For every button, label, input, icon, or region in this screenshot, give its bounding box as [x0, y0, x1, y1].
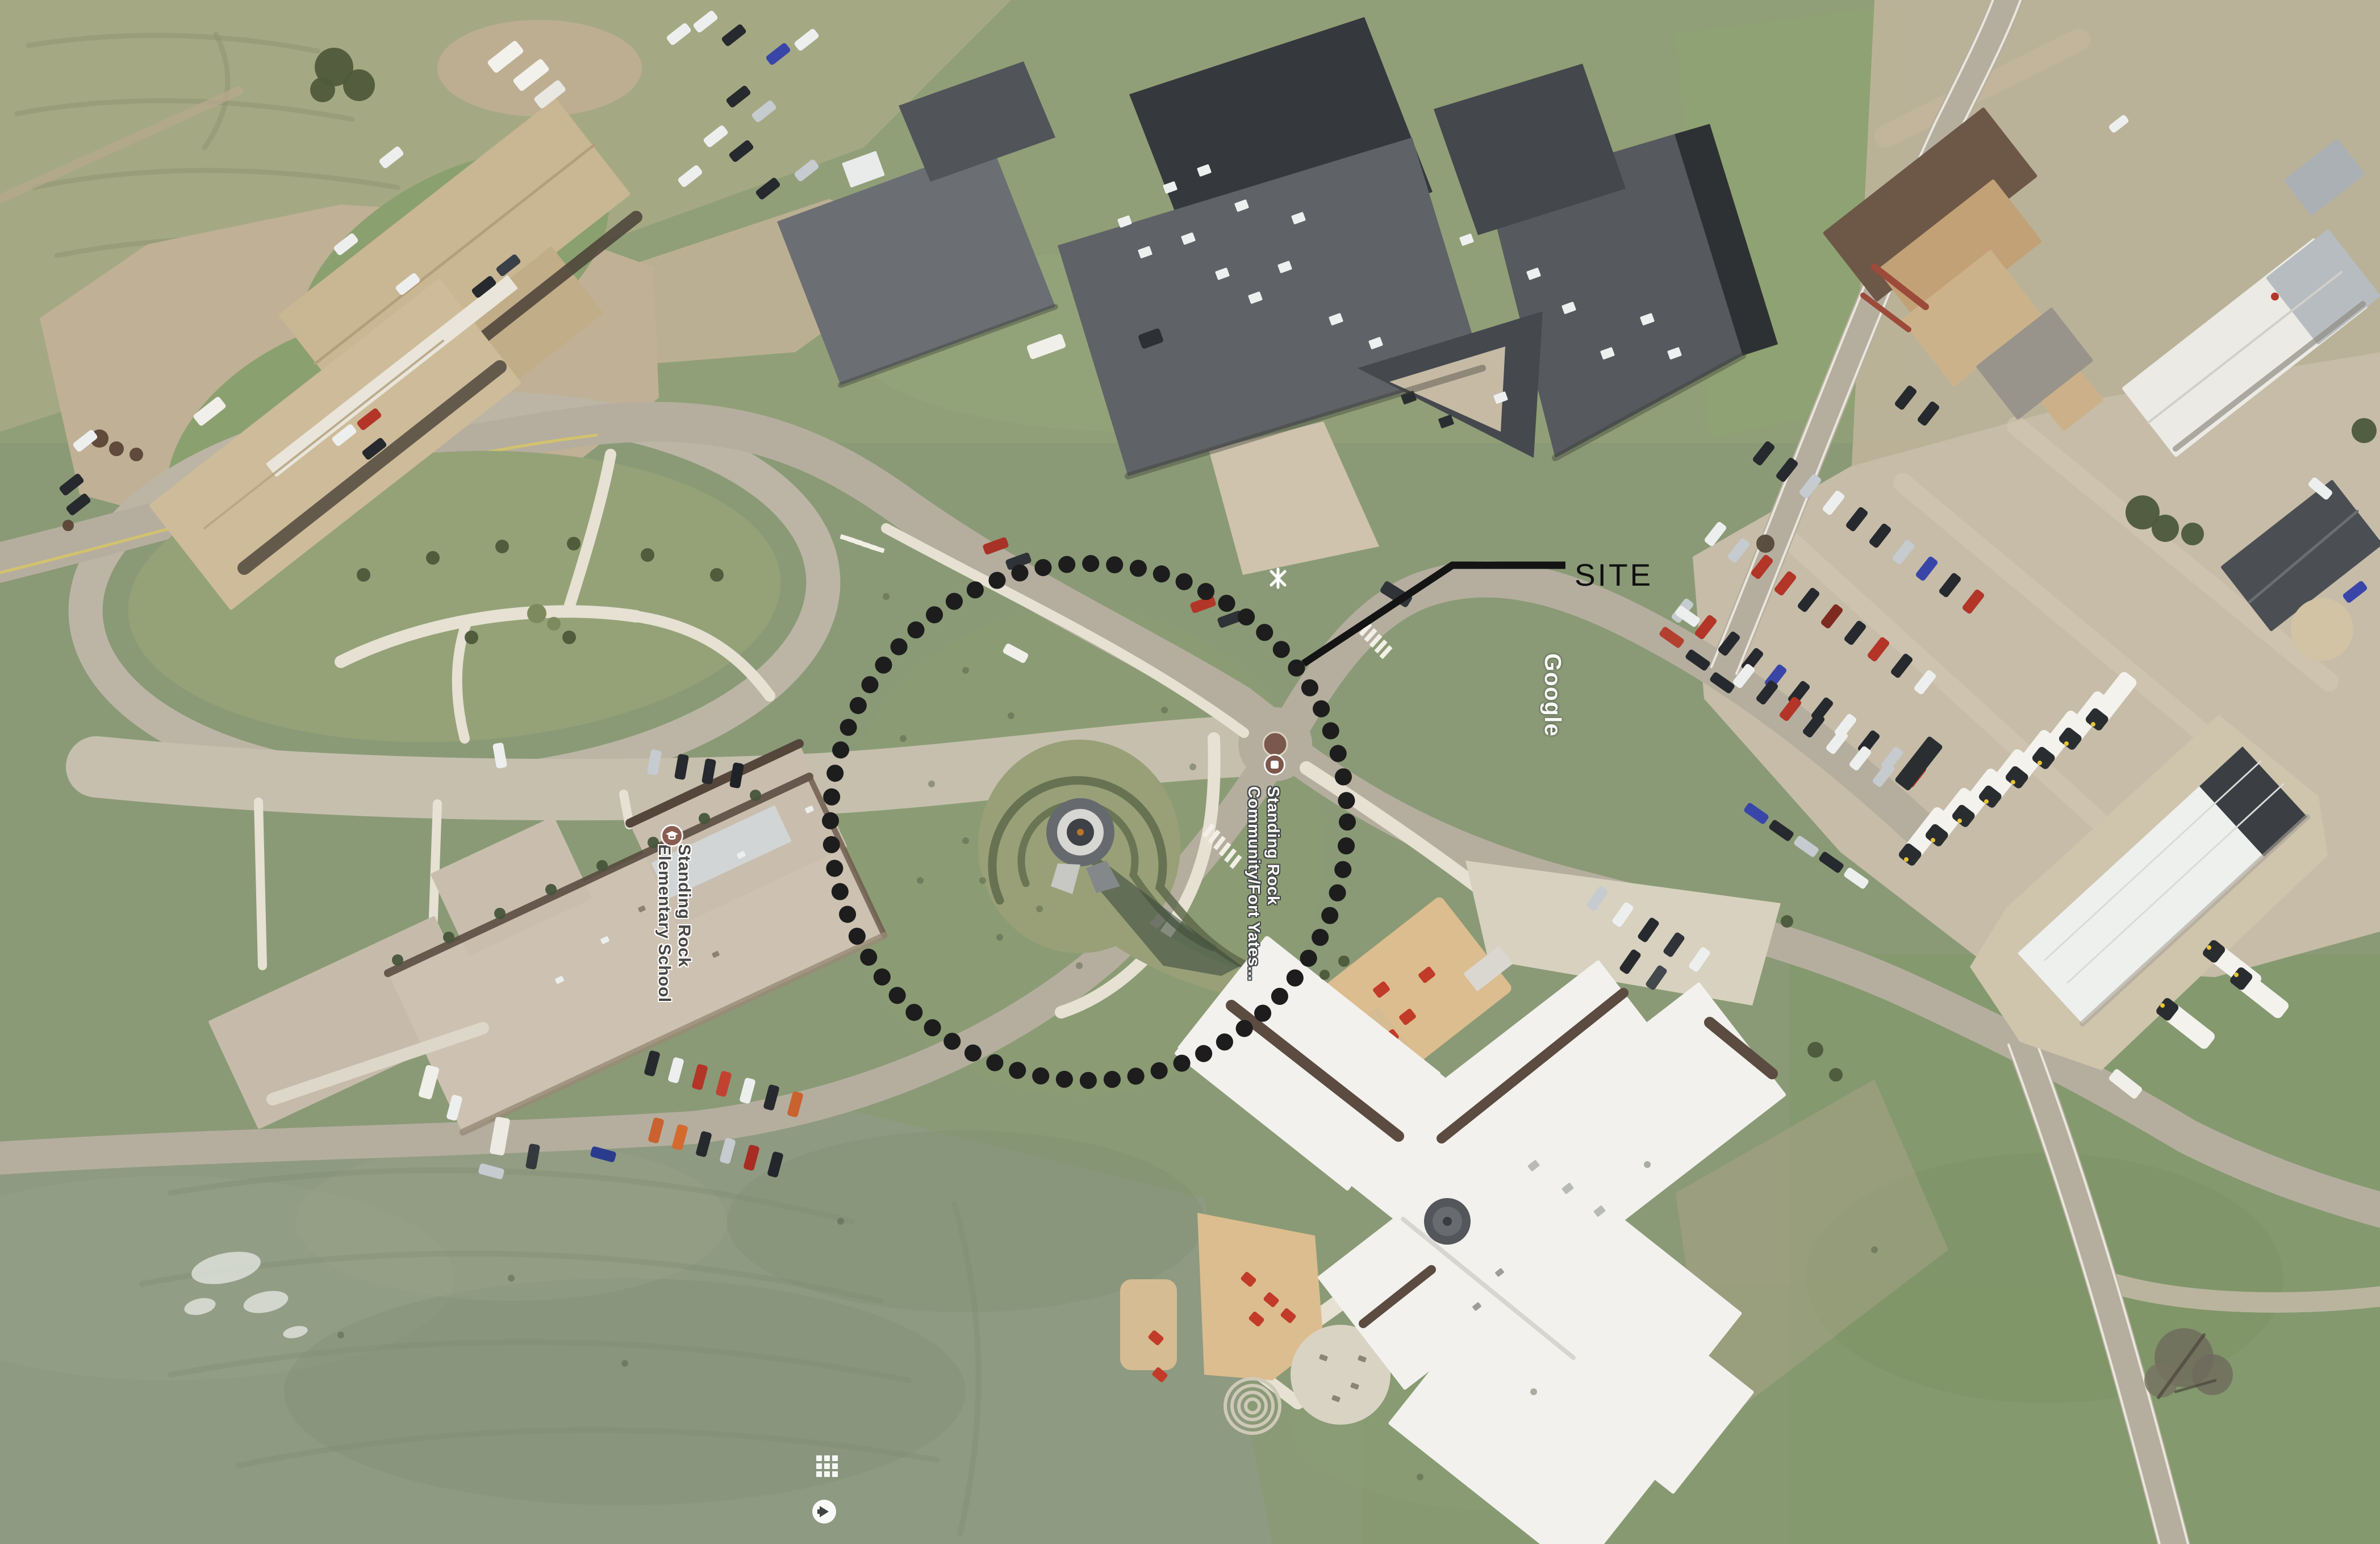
site-leader-line	[1304, 565, 1565, 663]
satellite-map-view[interactable]: Standing Rock Elementary School Standing…	[0, 0, 2380, 1544]
site-annotation-overlay	[0, 0, 2380, 1544]
site-label: SITE	[1575, 557, 1653, 593]
site-boundary-dotted-circle	[830, 564, 1347, 1080]
tile-grid-icon[interactable]	[816, 1455, 839, 1478]
pegman-circle-icon[interactable]	[812, 1500, 836, 1524]
